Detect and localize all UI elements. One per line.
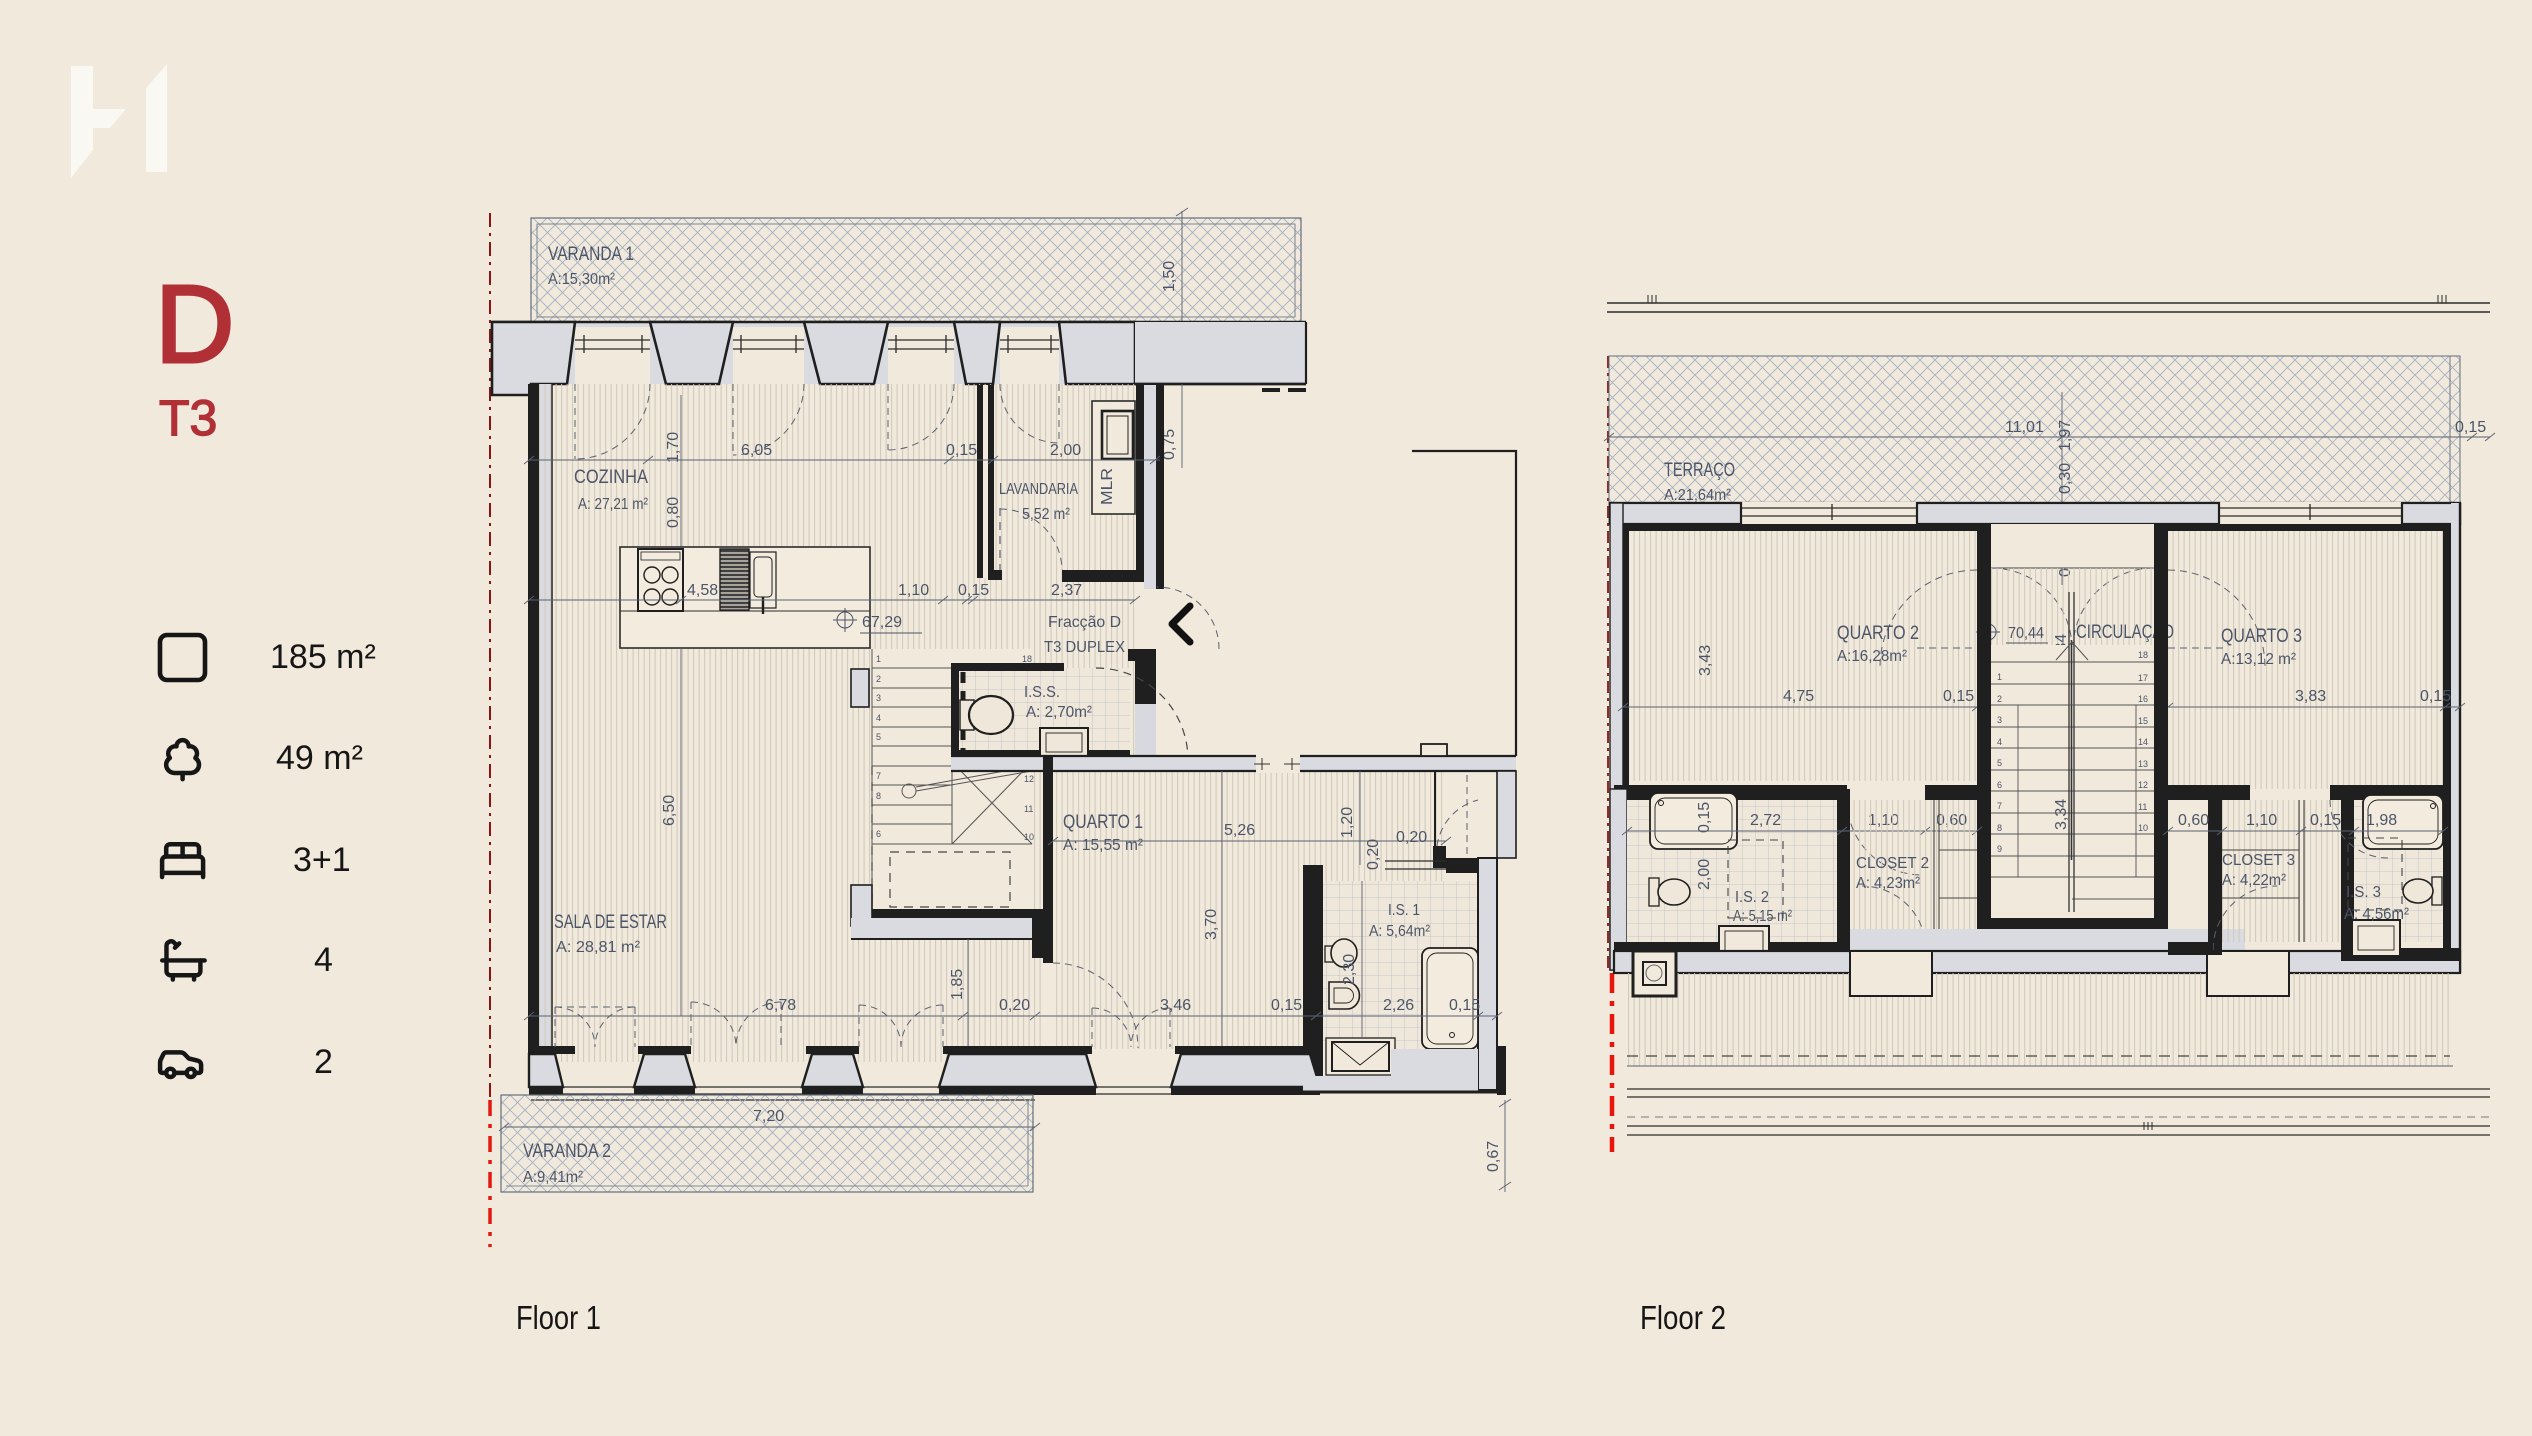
svg-text:Floor 1: Floor 1 [516, 1299, 601, 1336]
svg-text:14: 14 [2138, 737, 2148, 747]
svg-text:18: 18 [1022, 654, 1032, 664]
svg-text:A:13,12 m²: A:13,12 m² [2221, 651, 2297, 668]
svg-text:T3 DUPLEX: T3 DUPLEX [1044, 639, 1125, 656]
svg-text:I.S. 2: I.S. 2 [1735, 889, 1769, 906]
svg-text:0,67: 0,67 [1485, 1141, 1502, 1172]
svg-text:CLOSET 2: CLOSET 2 [1856, 855, 1929, 872]
svg-text:MLR: MLR [1099, 468, 1116, 505]
svg-text:A: 27,21 m²: A: 27,21 m² [578, 496, 649, 513]
svg-text:T3: T3 [159, 390, 217, 446]
svg-text:9: 9 [1997, 844, 2002, 854]
svg-text:2,00: 2,00 [1696, 859, 1713, 890]
svg-text:0,15: 0,15 [2310, 812, 2341, 829]
svg-text:13: 13 [2138, 759, 2148, 769]
svg-text:QUARTO 3: QUARTO 3 [2221, 626, 2302, 647]
svg-text:2,37: 2,37 [1051, 582, 1082, 599]
svg-text:1,20: 1,20 [1339, 807, 1356, 838]
svg-text:COZINHA: COZINHA [574, 467, 648, 488]
svg-text:A:21,64m²: A:21,64m² [1664, 487, 1732, 504]
svg-text:TERRAÇO: TERRAÇO [1664, 460, 1735, 481]
svg-text:4,75: 4,75 [1783, 688, 1814, 705]
svg-text:1,50: 1,50 [1161, 261, 1178, 292]
svg-text:1,97: 1,97 [2057, 420, 2074, 451]
svg-text:3: 3 [1997, 715, 2002, 725]
svg-text:1,10: 1,10 [2246, 812, 2277, 829]
svg-text:0,15: 0,15 [1449, 997, 1480, 1014]
svg-text:10: 10 [1024, 832, 1034, 842]
svg-text:0,15: 0,15 [946, 442, 977, 459]
svg-text:5: 5 [1997, 758, 2002, 768]
svg-text:17: 17 [2138, 673, 2148, 683]
svg-text:A:9,41m²: A:9,41m² [523, 1169, 584, 1186]
svg-text:6,05: 6,05 [741, 442, 772, 459]
svg-text:CLOSET 3: CLOSET 3 [2222, 852, 2295, 869]
svg-text:1,70: 1,70 [665, 432, 682, 463]
svg-text:QUARTO 2: QUARTO 2 [1837, 623, 1919, 644]
svg-text:Floor 2: Floor 2 [1640, 1299, 1726, 1336]
svg-text:3: 3 [876, 693, 881, 703]
svg-text:6,78: 6,78 [765, 997, 796, 1014]
svg-text:1: 1 [1997, 672, 2002, 682]
svg-text:LAVANDARIA: LAVANDARIA [999, 481, 1078, 498]
svg-text:0,15: 0,15 [1943, 688, 1974, 705]
svg-text:0,15: 0,15 [1696, 802, 1713, 833]
svg-text:67,29: 67,29 [862, 614, 902, 631]
svg-text:0,80: 0,80 [665, 497, 682, 528]
svg-text:0,15: 0,15 [1271, 997, 1302, 1014]
svg-text:1,10: 1,10 [898, 582, 929, 599]
svg-text:7: 7 [876, 771, 881, 781]
svg-text:0,15: 0,15 [958, 582, 989, 599]
svg-text:2: 2 [876, 674, 881, 684]
svg-text:I.S.S.: I.S.S. [1024, 684, 1060, 701]
svg-text:15: 15 [2138, 716, 2148, 726]
svg-text:QUARTO 1: QUARTO 1 [1063, 812, 1143, 833]
svg-text:Fracção D: Fracção D [1048, 614, 1121, 631]
svg-text:A: 5,64m²: A: 5,64m² [1369, 923, 1431, 940]
svg-text:6,50: 6,50 [661, 795, 678, 826]
svg-text:11,01: 11,01 [2005, 419, 2044, 436]
svg-text:5,52 m²: 5,52 m² [1022, 506, 1071, 523]
svg-text:7: 7 [1997, 801, 2002, 811]
svg-text:4,58: 4,58 [687, 582, 718, 599]
svg-text:0,20: 0,20 [1396, 829, 1427, 846]
svg-text:VARANDA 1: VARANDA 1 [548, 244, 634, 265]
svg-text:3,83: 3,83 [2295, 688, 2326, 705]
svg-text:I.S. 1: I.S. 1 [1388, 902, 1420, 919]
svg-text:0,15: 0,15 [2455, 419, 2486, 436]
svg-text:3,43: 3,43 [1697, 645, 1714, 676]
svg-text:A:16,28m²: A:16,28m² [1837, 648, 1908, 665]
svg-text:1,98: 1,98 [2366, 812, 2397, 829]
svg-text:A: 2,70m²: A: 2,70m² [1026, 704, 1093, 721]
svg-text:7,20: 7,20 [753, 1108, 784, 1125]
svg-text:0,20: 0,20 [999, 997, 1030, 1014]
svg-text:11: 11 [1024, 804, 1033, 814]
svg-text:8: 8 [876, 791, 881, 801]
svg-text:SALA DE ESTAR: SALA DE ESTAR [554, 912, 667, 933]
svg-text:A: 4,23m²: A: 4,23m² [1856, 875, 1921, 892]
svg-text:2,30: 2,30 [1341, 954, 1358, 985]
svg-text:16: 16 [2138, 694, 2148, 704]
svg-text:4: 4 [314, 941, 333, 979]
svg-text:18: 18 [2138, 650, 2148, 660]
svg-text:0,30: 0,30 [2057, 463, 2074, 494]
svg-text:6: 6 [1997, 780, 2002, 790]
svg-text:A: 28,81 m²: A: 28,81 m² [556, 939, 641, 956]
svg-text:3+1: 3+1 [293, 841, 351, 879]
svg-text:5: 5 [876, 732, 881, 742]
svg-text:A: 4,56m²: A: 4,56m² [2344, 906, 2410, 923]
svg-text:2: 2 [1997, 694, 2002, 704]
svg-text:0,20: 0,20 [1365, 839, 1382, 870]
svg-text:D: D [155, 263, 234, 386]
svg-text:4: 4 [1997, 737, 2002, 747]
svg-text:10: 10 [2138, 823, 2148, 833]
svg-text:2: 2 [314, 1043, 333, 1081]
svg-text:I.S. 3: I.S. 3 [2346, 884, 2381, 901]
svg-text:8: 8 [1997, 823, 2002, 833]
svg-text:2,26: 2,26 [1383, 997, 1414, 1014]
svg-text:1: 1 [876, 654, 881, 664]
svg-text:12: 12 [2138, 780, 2148, 790]
svg-text:70,44: 70,44 [2008, 625, 2044, 642]
svg-text:A: 15,55 m²: A: 15,55 m² [1063, 837, 1144, 854]
svg-text:49 m²: 49 m² [276, 739, 363, 777]
svg-text:3,34: 3,34 [2053, 799, 2070, 830]
svg-text:11: 11 [2138, 802, 2147, 812]
svg-text:VARANDA 2: VARANDA 2 [523, 1141, 611, 1162]
svg-text:4: 4 [876, 713, 881, 723]
svg-text:2,00: 2,00 [1050, 442, 1081, 459]
svg-text:12: 12 [1024, 774, 1034, 784]
svg-text:0,60: 0,60 [2178, 812, 2209, 829]
svg-text:3,70: 3,70 [1203, 909, 1220, 940]
svg-text:0,15: 0,15 [2420, 688, 2451, 705]
svg-text:3,46: 3,46 [1160, 997, 1191, 1014]
svg-text:5,26: 5,26 [1224, 822, 1255, 839]
svg-text:6: 6 [876, 829, 881, 839]
svg-text:185 m²: 185 m² [270, 638, 376, 676]
svg-text:2,72: 2,72 [1750, 812, 1781, 829]
svg-text:A: 5,15 m²: A: 5,15 m² [1733, 908, 1793, 925]
svg-text:1,85: 1,85 [949, 969, 966, 1000]
svg-text:A:15,30m²: A:15,30m² [548, 271, 616, 288]
